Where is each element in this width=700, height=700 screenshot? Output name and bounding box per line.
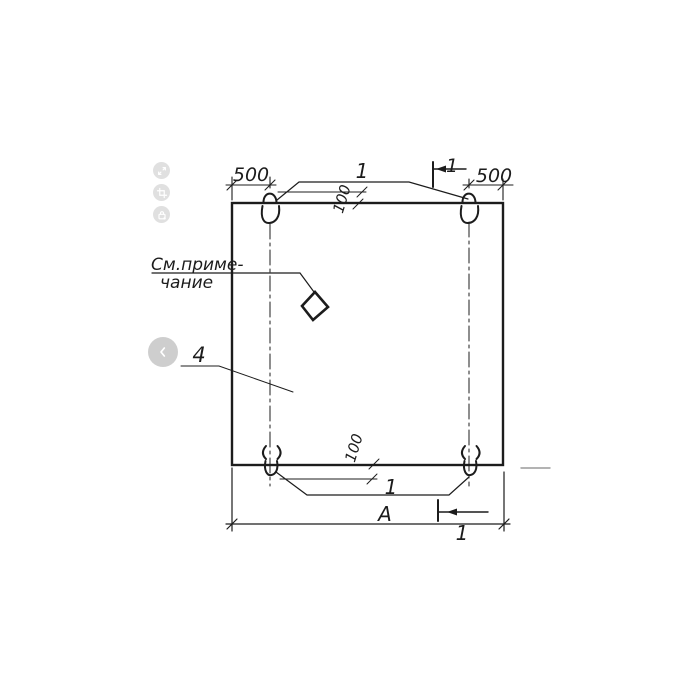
lock-icon xyxy=(156,209,168,221)
crop-icon xyxy=(156,187,168,199)
expand-button[interactable] xyxy=(153,162,170,179)
technical-drawing-page: 500 500 1 1 100 100 См.приме- чание 4 1 … xyxy=(0,0,700,700)
chevron-left-icon xyxy=(155,344,171,360)
item-4-leader xyxy=(181,366,293,392)
dim-500-top-right-label: 500 xyxy=(476,165,512,187)
previous-image-button[interactable] xyxy=(148,337,178,367)
lifting-loop-top-right xyxy=(461,194,478,223)
lifting-loop-bottom-left xyxy=(263,446,281,475)
expand-icon xyxy=(156,165,168,177)
leader-loops-bottom xyxy=(276,472,469,495)
section-mark-bottom-label: 1 xyxy=(456,521,469,545)
dim-100-top-label: 100 xyxy=(329,183,355,216)
panel-outline xyxy=(232,203,503,465)
lifting-loop-top-left xyxy=(262,194,279,223)
crop-button[interactable] xyxy=(153,184,170,201)
section-mark-top-label: 1 xyxy=(446,155,458,177)
dim-500-top-left-label: 500 xyxy=(233,164,269,186)
dim-100-bottom xyxy=(280,459,379,484)
note-label-line2: чание xyxy=(160,273,213,293)
technical-drawing: 500 500 1 1 100 100 См.приме- чание 4 1 … xyxy=(0,0,700,700)
item-4-label: 4 xyxy=(192,343,205,367)
callout-loops-top-label: 1 xyxy=(356,159,369,183)
leader-loops-top xyxy=(277,182,468,200)
diamond-marker xyxy=(302,292,328,320)
callout-loops-bottom-label: 1 xyxy=(385,475,398,499)
dim-100-bottom-label: 100 xyxy=(341,432,367,465)
protect-button[interactable] xyxy=(153,206,170,223)
dim-overall-width-label: A xyxy=(376,502,392,526)
lifting-loop-bottom-right xyxy=(462,446,480,475)
note-label-line1: См.приме- xyxy=(151,255,243,275)
section-mark-bottom xyxy=(438,500,488,521)
